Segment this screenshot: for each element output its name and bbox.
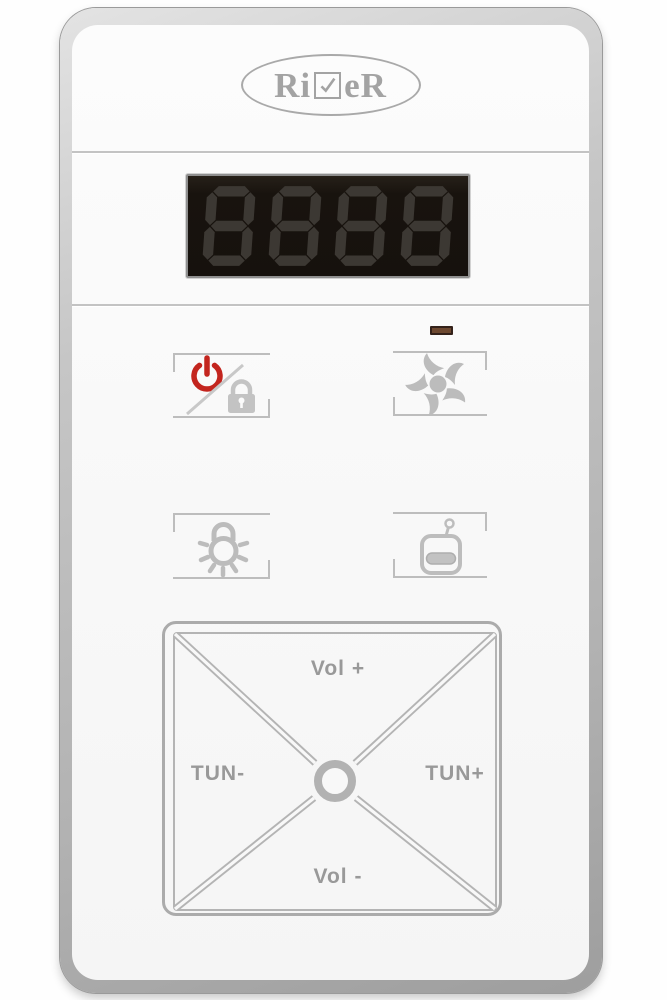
display-digit xyxy=(332,183,390,269)
checkbox-check-icon xyxy=(314,72,341,99)
radio-button[interactable] xyxy=(393,512,487,578)
display-digit xyxy=(266,183,324,269)
dpad-volume-up-button[interactable]: Vol + xyxy=(311,657,365,681)
radio-icon xyxy=(393,512,487,578)
light-button[interactable] xyxy=(173,513,270,579)
dpad-tune-down-button[interactable]: TUN- xyxy=(191,762,245,786)
brand-text-right: eR xyxy=(344,68,387,103)
seven-segment-display xyxy=(186,174,470,278)
front-panel: Ri eR xyxy=(72,25,589,980)
dpad: Vol + TUN- TUN+ Vol - xyxy=(162,621,502,916)
dpad-tune-up-button[interactable]: TUN+ xyxy=(425,762,484,786)
fan-button[interactable] xyxy=(393,351,487,416)
dpad-volume-down-button[interactable]: Vol - xyxy=(314,865,363,889)
power-lock-icon-group xyxy=(173,353,270,418)
section-divider-top xyxy=(72,151,589,153)
display-digit xyxy=(398,183,456,269)
light-bulb-icon xyxy=(173,513,270,579)
brand-text-left: Ri xyxy=(274,68,311,103)
fan-icon xyxy=(393,351,487,416)
dpad-center-ring-button[interactable] xyxy=(314,760,356,802)
control-panel-device: Ri eR xyxy=(60,8,602,993)
display-digit xyxy=(200,183,258,269)
section-divider-bottom xyxy=(72,304,589,306)
power-lock-button[interactable] xyxy=(173,353,270,418)
power-icon xyxy=(194,358,220,389)
status-led xyxy=(430,326,453,335)
lock-icon xyxy=(228,382,255,414)
photo-background: Ri eR xyxy=(0,0,667,1000)
brand-logo: Ri eR xyxy=(241,54,421,116)
